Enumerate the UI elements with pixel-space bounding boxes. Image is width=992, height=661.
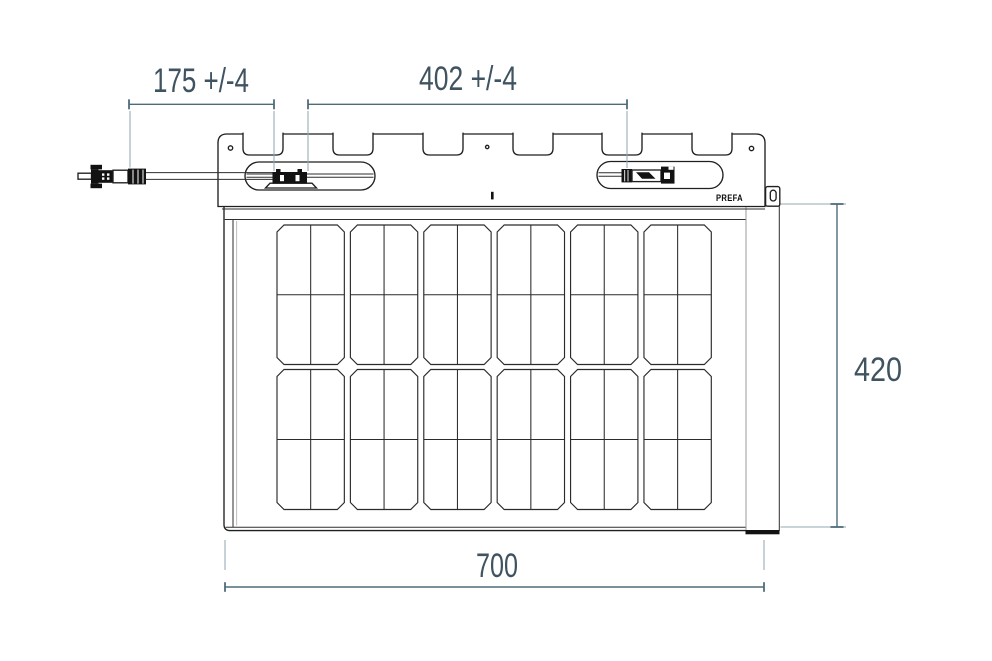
cell-group: [571, 225, 638, 365]
clamp-slot: [280, 175, 284, 181]
cell-group: [424, 225, 491, 365]
bar-notch: [243, 133, 283, 155]
dimension-module-width: 700: [225, 540, 764, 592]
connector-neck: [91, 169, 99, 183]
dimension-label: 420: [854, 351, 902, 389]
mounting-hole: [749, 146, 753, 150]
dimension-module-height: 420: [781, 204, 903, 527]
connector-pin: [78, 173, 92, 179]
top-mounting-bar: PREFA: [218, 133, 780, 209]
connector-clip-bottom: [91, 184, 103, 189]
connector-sleeve: [113, 170, 128, 183]
connector-body-detail: [107, 177, 109, 179]
dimension-label: 700: [476, 547, 518, 585]
connector-body-detail: [107, 173, 109, 175]
connector-right-notch: [669, 167, 674, 170]
connector-clip-top: [91, 165, 103, 170]
cell-group: [350, 370, 417, 510]
mounting-hole: [486, 145, 489, 148]
dimension-label: 175 +/-4: [153, 62, 249, 100]
panel-bottom-right-band: [746, 530, 780, 534]
bar-notch: [602, 133, 642, 155]
clamp-slot: [296, 175, 300, 181]
connector-body: [99, 170, 114, 183]
tab-hole: [770, 190, 776, 201]
cell-group: [644, 225, 711, 365]
cell-group: [350, 225, 417, 365]
bar-notch: [692, 133, 732, 155]
connector-body-detail: [102, 173, 104, 175]
cell-group: [424, 370, 491, 510]
cell-group: [644, 370, 711, 510]
cell-group: [277, 370, 344, 510]
cell-group: [497, 225, 564, 365]
center-mark: [491, 192, 494, 200]
prefa-logo: PREFA: [716, 193, 743, 204]
technical-drawing-page: PREFA: [0, 0, 992, 661]
dimension-label: 402 +/-4: [419, 60, 517, 98]
mounting-hole: [228, 146, 232, 150]
side-tab: [766, 187, 780, 207]
cell-group: [497, 370, 564, 510]
bar-notch: [513, 133, 553, 155]
cell-group: [571, 370, 638, 510]
mc4-connector: [78, 165, 146, 188]
bar-notch: [423, 133, 463, 155]
connector-right-notch: [664, 173, 670, 179]
clamp-base-plate: [266, 183, 317, 188]
connector-right-gland: [622, 169, 633, 182]
technical-drawing: PREFA: [0, 0, 992, 661]
cell-group: [277, 225, 344, 365]
connector-body-detail: [102, 177, 104, 179]
clamp-body: [273, 172, 308, 184]
bar-notch: [333, 133, 373, 155]
